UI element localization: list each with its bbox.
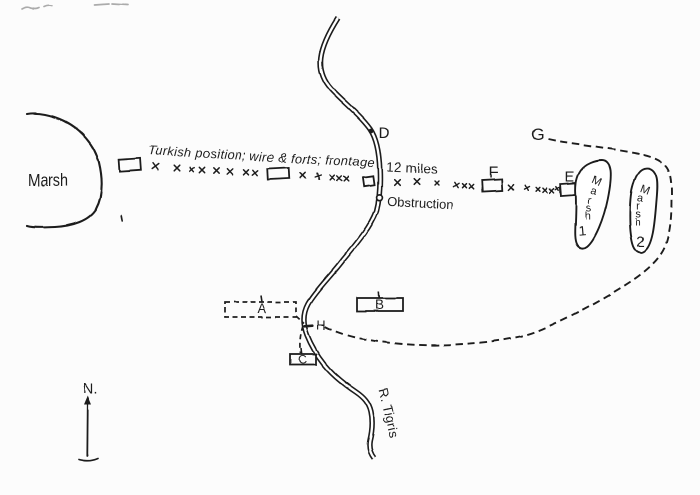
- svg-text:12 miles: 12 miles: [386, 160, 439, 177]
- svg-text:Turkish position; wire & forts: Turkish position; wire & forts; frontage: [148, 143, 376, 171]
- svg-text:E: E: [565, 169, 575, 186]
- svg-text:F: F: [489, 165, 499, 182]
- svg-text:B: B: [375, 297, 384, 312]
- svg-text:H: H: [317, 319, 326, 333]
- svg-text:C: C: [298, 353, 307, 367]
- svg-text:Marsh: Marsh: [28, 171, 68, 191]
- svg-text:R. Tigris: R. Tigris: [376, 386, 402, 439]
- svg-text:G: G: [532, 125, 545, 144]
- svg-text:N.: N.: [83, 380, 98, 397]
- svg-text:h: h: [585, 211, 591, 223]
- svg-text:D: D: [379, 125, 391, 142]
- svg-text:2: 2: [637, 235, 645, 251]
- svg-text:1: 1: [578, 223, 587, 239]
- svg-text:Obstruction: Obstruction: [387, 194, 454, 212]
- svg-text:h: h: [635, 217, 641, 229]
- svg-text:A: A: [258, 301, 267, 316]
